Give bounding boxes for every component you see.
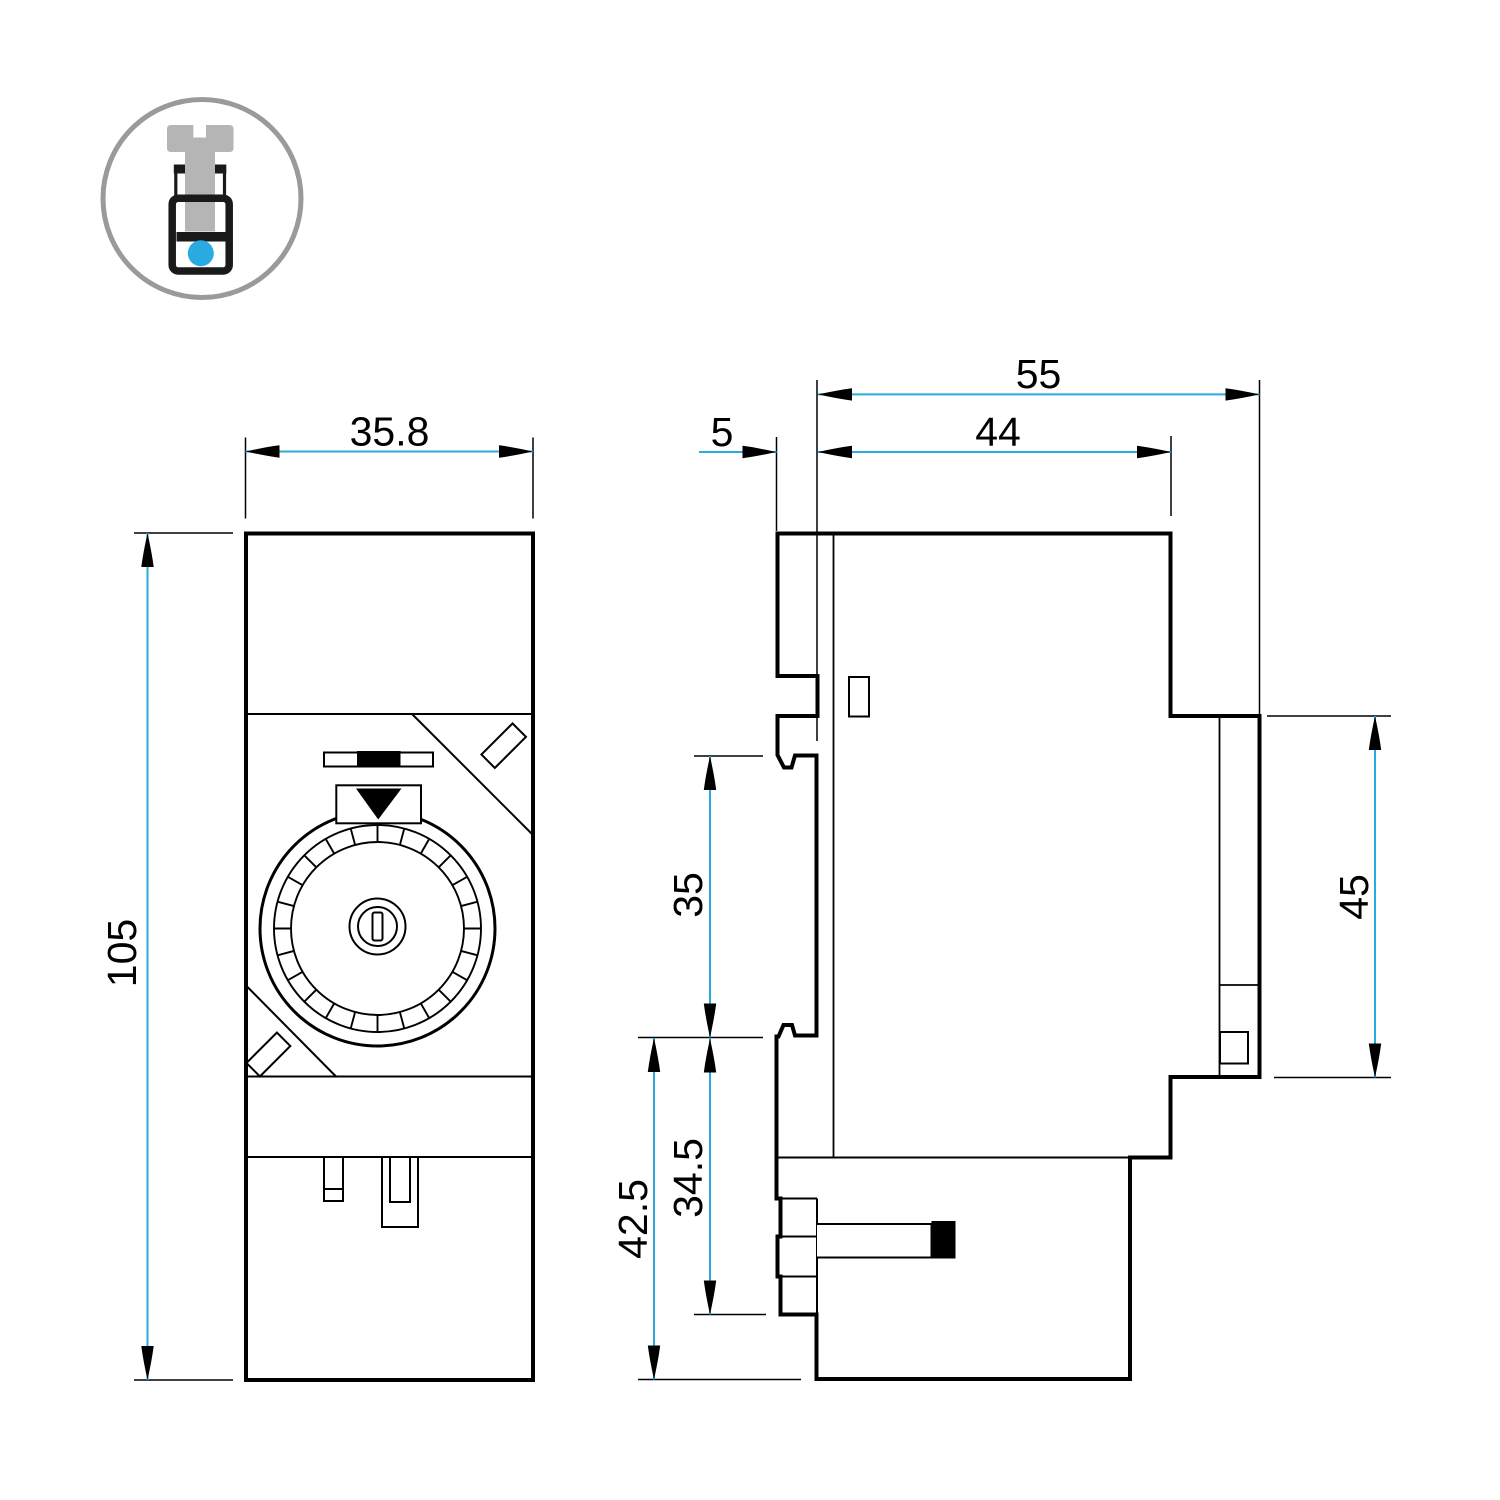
svg-text:42.5: 42.5	[610, 1179, 656, 1259]
svg-text:45: 45	[1331, 874, 1377, 920]
svg-text:5: 5	[711, 409, 734, 455]
svg-text:35.8: 35.8	[350, 409, 430, 455]
svg-text:35: 35	[665, 872, 711, 918]
svg-text:44: 44	[975, 409, 1021, 455]
svg-text:55: 55	[1016, 351, 1062, 397]
svg-text:105: 105	[99, 919, 145, 987]
svg-text:34.5: 34.5	[665, 1138, 711, 1218]
